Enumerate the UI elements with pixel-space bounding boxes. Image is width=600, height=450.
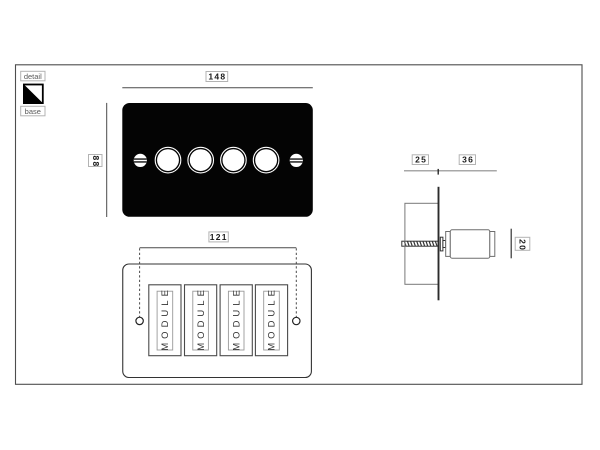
svg-text:88: 88 bbox=[91, 155, 101, 167]
svg-text:MODULE: MODULE bbox=[231, 286, 242, 351]
svg-text:detail: detail bbox=[24, 72, 42, 81]
svg-text:MODULE: MODULE bbox=[196, 286, 207, 351]
svg-text:MODULE: MODULE bbox=[160, 286, 171, 351]
svg-text:MODULE: MODULE bbox=[267, 286, 278, 351]
svg-text:base: base bbox=[25, 107, 41, 116]
svg-text:25: 25 bbox=[415, 155, 427, 165]
svg-text:20: 20 bbox=[518, 239, 528, 251]
svg-text:121: 121 bbox=[210, 232, 228, 242]
svg-text:36: 36 bbox=[462, 155, 474, 165]
svg-text:148: 148 bbox=[208, 71, 226, 81]
